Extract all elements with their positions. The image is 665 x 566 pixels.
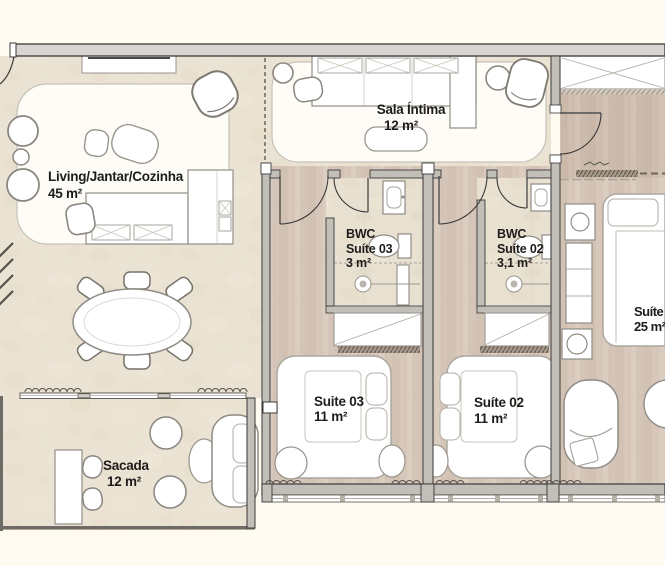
svg-text:Living/Jantar/Cozinha: Living/Jantar/Cozinha: [48, 169, 184, 184]
svg-text:12 m²: 12 m²: [384, 118, 419, 133]
svg-text:11 m²: 11 m²: [314, 409, 348, 424]
svg-text:Sacada: Sacada: [103, 458, 150, 473]
svg-text:3 m²: 3 m²: [346, 256, 371, 270]
svg-text:Suíte 02: Suíte 02: [474, 395, 524, 410]
svg-text:Suite 03: Suite 03: [314, 394, 365, 409]
svg-text:3,1 m²: 3,1 m²: [497, 256, 532, 270]
svg-text:Suíte 03: Suíte 03: [346, 242, 393, 256]
svg-text:Suíte 02: Suíte 02: [497, 242, 544, 256]
svg-text:Suíte: Suíte: [634, 304, 664, 319]
svg-text:BWC: BWC: [346, 227, 375, 241]
svg-text:45 m²: 45 m²: [48, 186, 83, 201]
svg-text:BWC: BWC: [497, 227, 526, 241]
svg-text:12 m²: 12 m²: [107, 474, 142, 489]
svg-text:25 m²: 25 m²: [634, 319, 665, 334]
svg-text:Sala Íntima: Sala Íntima: [377, 102, 446, 117]
svg-text:11 m²: 11 m²: [474, 411, 508, 426]
